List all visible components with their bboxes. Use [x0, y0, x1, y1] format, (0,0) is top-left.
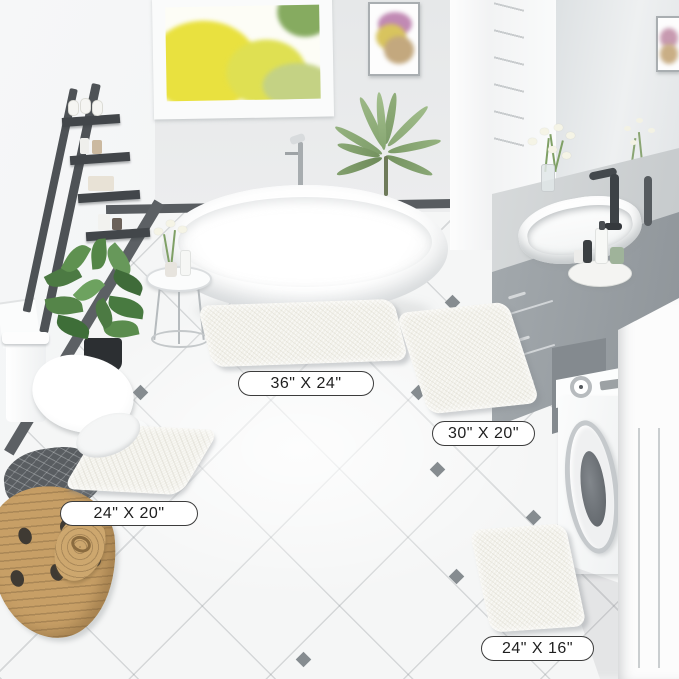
- green-jar: [610, 247, 624, 264]
- table-jar: [165, 262, 177, 277]
- white-flower: [548, 146, 557, 153]
- white-flower: [562, 152, 571, 159]
- folded-towel: [88, 176, 114, 191]
- white-flower: [178, 226, 187, 233]
- bathroom-scene: 36" X 24" 30" X 20" 24" X 20" 24" X 16": [0, 0, 679, 679]
- basket-dot: [16, 526, 34, 546]
- rolled-towel: [80, 98, 91, 114]
- bath-mat-36x24: [197, 299, 408, 367]
- tub-faucet-arm: [285, 152, 298, 155]
- soap-pump-top: [599, 221, 605, 230]
- wall-art-floral: [368, 2, 420, 76]
- white-flower: [154, 228, 163, 235]
- white-flower: [566, 132, 575, 139]
- table-bottle: [180, 250, 191, 276]
- reflected-flower: [636, 118, 643, 123]
- soap-pump-bottle: [595, 228, 608, 264]
- drawer-handle: [508, 291, 526, 299]
- size-label-24x20: 24" X 20": [60, 501, 198, 526]
- size-label-36x24: 36" X 24": [238, 371, 374, 396]
- washer-knob: [570, 376, 592, 398]
- basket-dot: [9, 568, 27, 588]
- art-paint-blob: [384, 36, 414, 64]
- shelf-jar: [112, 218, 122, 230]
- wall-art-corner: [656, 16, 679, 72]
- shelf-jar: [92, 140, 102, 154]
- white-flower: [528, 138, 537, 145]
- rolled-towel: [92, 100, 103, 116]
- size-label-30x20: 30" X 20": [432, 421, 535, 446]
- cabinet-panel-lines: [638, 428, 668, 668]
- art-paint-blob: [660, 44, 678, 64]
- rolled-towel: [68, 100, 79, 116]
- shelf-edges: [494, 2, 524, 159]
- lid-handle-ring: [69, 533, 93, 555]
- storage-cabinet: [618, 298, 679, 679]
- glass-vase: [541, 164, 555, 192]
- reflected-flower: [630, 140, 637, 145]
- table-base-ring: [151, 330, 209, 348]
- wall-pillar: [450, 0, 492, 250]
- side-table: [146, 266, 212, 292]
- shelf-bottle: [80, 138, 89, 154]
- size-label-24x16: 24" X 16": [481, 636, 594, 661]
- white-jar: [574, 250, 583, 263]
- window-view: [165, 5, 321, 102]
- vanity-faucet: [610, 174, 619, 228]
- white-flower: [166, 220, 175, 227]
- window: [152, 0, 334, 120]
- green-branch: [277, 5, 321, 38]
- dark-bottle: [583, 240, 592, 263]
- washer-drum: [577, 450, 610, 528]
- white-flower: [540, 128, 549, 135]
- toiletry-tray: [568, 260, 632, 287]
- shelf-bottle: [98, 214, 110, 230]
- palm-trunk: [384, 156, 388, 196]
- toilet-tank-lid: [2, 332, 49, 344]
- second-faucet: [644, 176, 652, 226]
- freestanding-bathtub: [162, 185, 448, 313]
- reflected-flower: [648, 128, 655, 133]
- reflected-flower: [624, 126, 631, 131]
- white-flower: [554, 124, 563, 131]
